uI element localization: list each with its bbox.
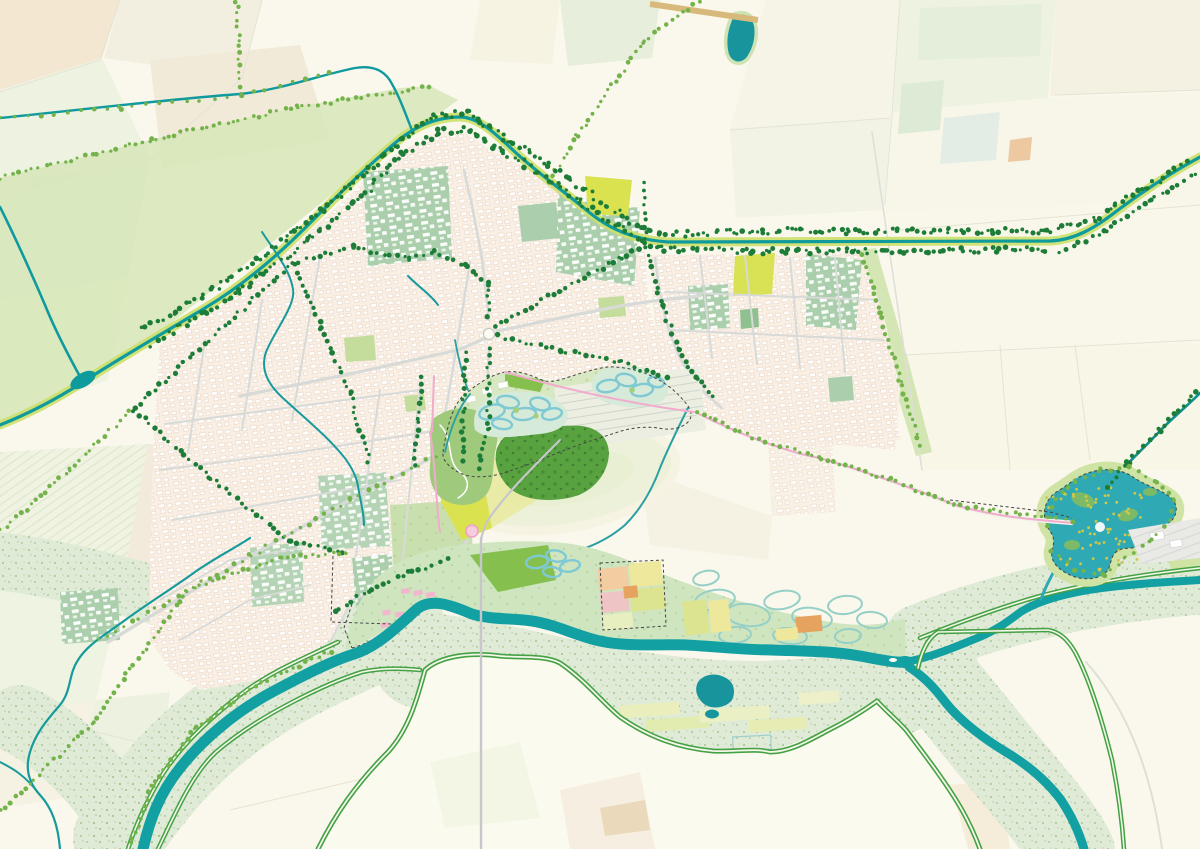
roundabout <box>484 329 495 340</box>
lake-stage-circle <box>1095 522 1105 532</box>
pink-roundabout <box>466 525 478 537</box>
masterplan-map <box>0 0 1200 849</box>
floodplain-pond-small <box>705 710 719 719</box>
map-canvas <box>0 0 1200 849</box>
river-island <box>889 658 897 662</box>
chartreuse-field-east <box>733 253 775 296</box>
